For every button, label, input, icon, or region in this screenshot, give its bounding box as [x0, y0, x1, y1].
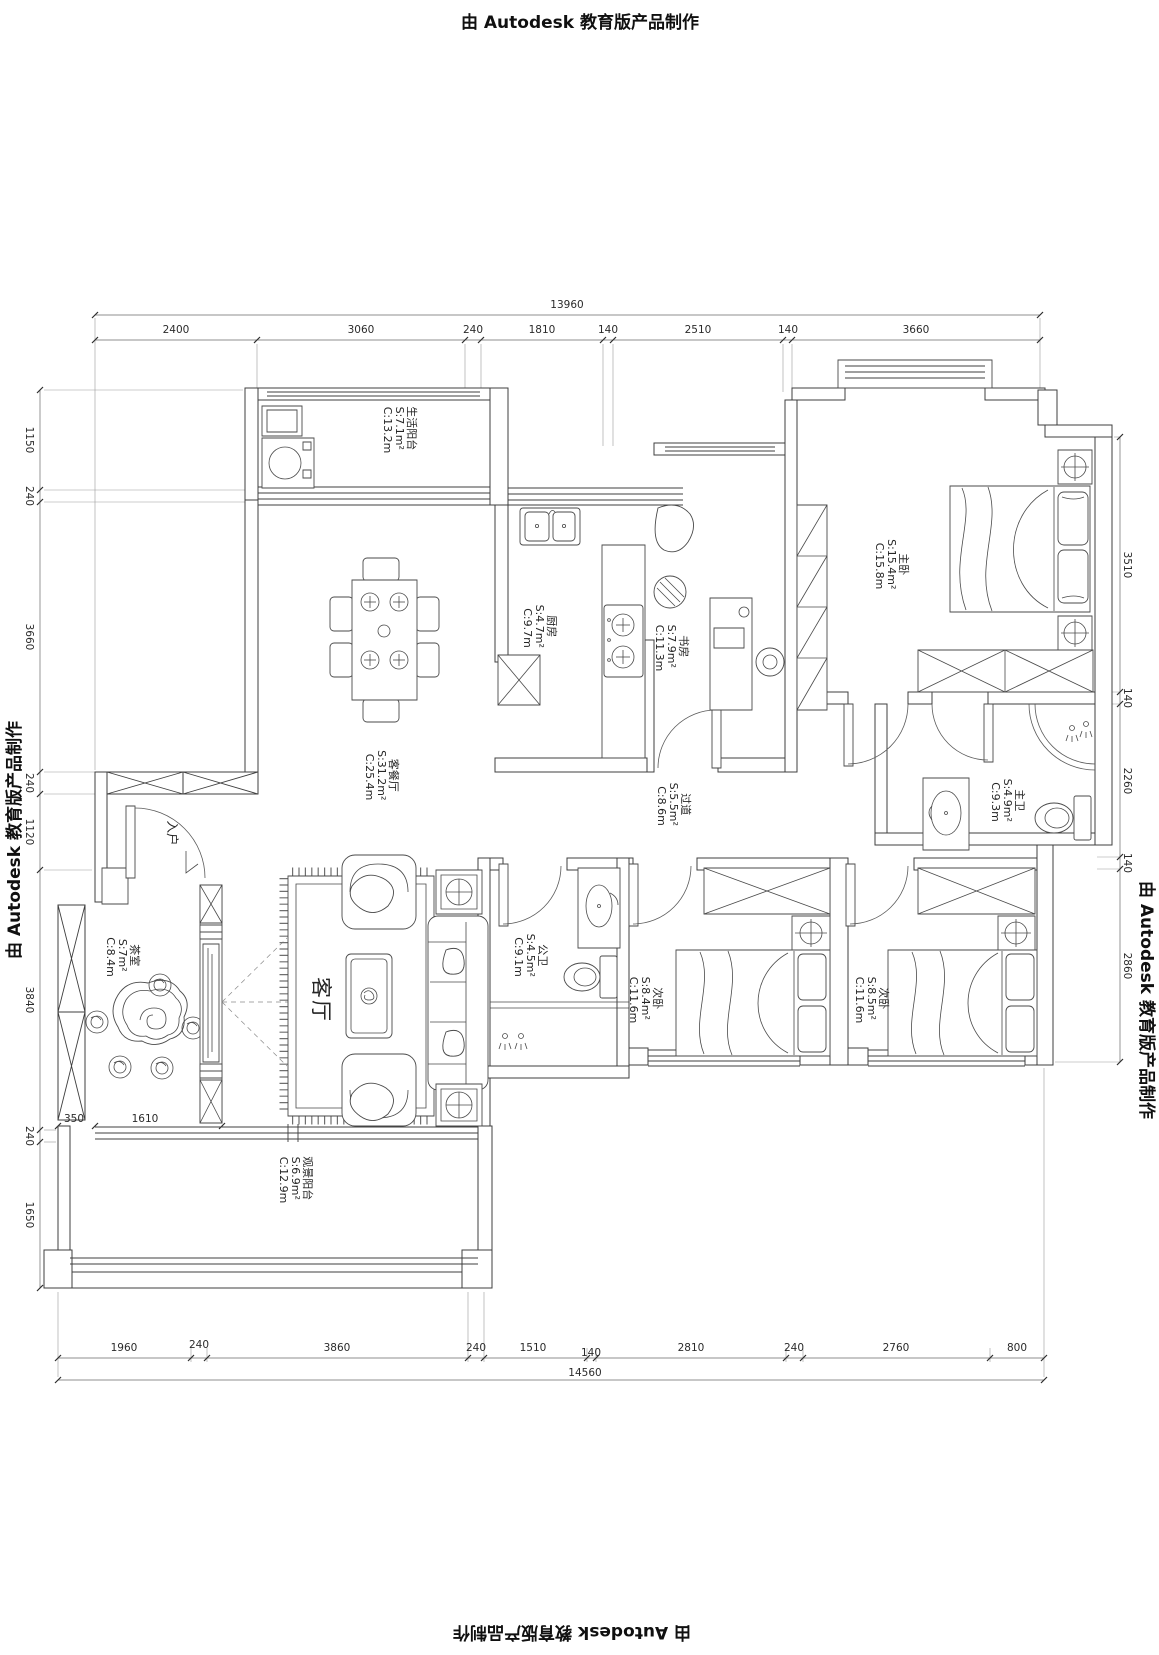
- label-guest-bath: 公卫 S:4.5m² C:9.1m: [512, 934, 549, 981]
- svg-text:240: 240: [466, 1342, 486, 1354]
- svg-text:3510: 3510: [1121, 552, 1133, 579]
- label-study: 书房 S:7.9m² C:11.3m: [653, 625, 690, 672]
- bedroom3-nightstand: [998, 916, 1035, 950]
- tv-wall: [200, 885, 300, 1123]
- bedroom2-nightstand: [792, 916, 830, 950]
- master-nightstand-2: [1058, 616, 1092, 650]
- guest-toilet: [564, 956, 617, 998]
- bedroom3-bed: [888, 950, 1037, 1056]
- svg-text:2760: 2760: [883, 1342, 910, 1354]
- entry-arrow: [186, 851, 198, 873]
- guest-shower: [490, 1002, 629, 1050]
- svg-text:240: 240: [189, 1339, 209, 1351]
- study-door: [658, 706, 721, 768]
- master-bath-sink: [923, 778, 969, 850]
- label-master-bedroom: 主卧 S:15.4m² C:15.8m: [873, 539, 910, 593]
- svg-text:3660: 3660: [23, 624, 35, 651]
- bedroom2-door: [629, 864, 691, 926]
- master-shower: [1029, 704, 1095, 770]
- label-bedroom2: 次卧 S:8.4m² C:11.6m: [627, 977, 665, 1024]
- bay-window-master: [838, 360, 992, 388]
- dim-interior-350: 350: [64, 1113, 84, 1125]
- label-corridor: 过道 S:5.5m² C:8.6m: [655, 783, 693, 830]
- label-kitchen: 厨房 S:4.7m² C:9.7m: [521, 605, 558, 652]
- study-side-table: [654, 576, 686, 608]
- label-tea-room: 茶室 S:7m² C:8.4m: [104, 937, 142, 977]
- svg-text:1510: 1510: [520, 1342, 547, 1354]
- floor-plan-sheet: 生活阳台 S:7.1m² C:13.2m 厨房 S:4.7m² C:9.7m 书…: [0, 0, 1159, 1655]
- bottom-dim-ticks: [55, 1355, 1047, 1383]
- label-view-balcony: 观景阳台 S:6.9m² C:12.9m: [277, 1156, 315, 1204]
- svg-text:240: 240: [23, 1126, 35, 1146]
- svg-text:2860: 2860: [1121, 953, 1133, 980]
- watermark-bottom: 由 Autodesk 教育版产品制作: [453, 1622, 691, 1643]
- guest-bath-door: [499, 864, 561, 926]
- svg-text:3860: 3860: [324, 1342, 351, 1354]
- svg-text:2810: 2810: [678, 1342, 705, 1354]
- top-dim-ticks: [92, 312, 1043, 343]
- svg-text:1960: 1960: [111, 1342, 138, 1354]
- entry-door: [102, 806, 205, 904]
- svg-text:1650: 1650: [23, 1202, 35, 1229]
- label-living-room: 客厅: [309, 977, 333, 1023]
- svg-text:140: 140: [581, 1347, 601, 1359]
- washing-machine: [262, 406, 314, 488]
- label-master-bath: 主卫 S:4.9m² C:9.3m: [989, 779, 1026, 826]
- armchair-bottom: [342, 1054, 416, 1126]
- master-nightstand-1: [1058, 450, 1092, 484]
- guest-bath-sink: [578, 868, 620, 948]
- sofa: [428, 916, 488, 1090]
- svg-text:140: 140: [1121, 688, 1133, 708]
- dim-interior-1610: 1610: [132, 1113, 159, 1125]
- master-bath-door: [932, 704, 993, 762]
- svg-text:2260: 2260: [1121, 768, 1133, 795]
- watermark-right: 由 Autodesk 教育版产品制作: [1136, 881, 1157, 1119]
- svg-text:240: 240: [784, 1342, 804, 1354]
- watermark-top: 由 Autodesk 教育版产品制作: [461, 12, 699, 33]
- kitchen-sink: [520, 508, 580, 545]
- svg-text:240: 240: [23, 486, 35, 506]
- svg-text:800: 800: [1007, 1342, 1027, 1354]
- watermark-left: 由 Autodesk 教育版产品制作: [4, 721, 25, 959]
- study-armchair: [655, 505, 693, 552]
- svg-text:1810: 1810: [529, 324, 556, 336]
- dim-bottom-total: 14560: [568, 1367, 601, 1379]
- bedroom2-wardrobe: [704, 868, 830, 914]
- dining-table: [330, 558, 439, 722]
- svg-text:3660: 3660: [903, 324, 930, 336]
- dim-top-total: 13960: [550, 299, 583, 311]
- svg-text:140: 140: [778, 324, 798, 336]
- tea-room-pier: [58, 905, 85, 1120]
- floor-plan-drawing: 生活阳台 S:7.1m² C:13.2m 厨房 S:4.7m² C:9.7m 书…: [0, 0, 1159, 1655]
- svg-text:2510: 2510: [685, 324, 712, 336]
- armchair-top: [342, 855, 416, 929]
- kitchen-stove: [604, 605, 643, 677]
- master-wardrobe: [918, 650, 1093, 692]
- label-bedroom3: 次卧 S:8.5m² C:11.6m: [853, 977, 891, 1024]
- coffee-table: [346, 954, 392, 1038]
- bedroom3-door: [846, 864, 908, 926]
- label-service-balcony: 生活阳台 S:7.1m² C:13.2m: [381, 406, 419, 454]
- svg-text:3840: 3840: [23, 987, 35, 1014]
- svg-text:240: 240: [463, 324, 483, 336]
- refrigerator: [498, 655, 540, 705]
- master-bed: [950, 486, 1090, 612]
- svg-text:2400: 2400: [163, 324, 190, 336]
- svg-text:140: 140: [598, 324, 618, 336]
- entry-wall-cabinet: [107, 772, 258, 794]
- label-living-dining: 客餐厅 S:31.2m² C:25.4m: [363, 750, 401, 804]
- svg-text:140: 140: [1121, 853, 1133, 873]
- master-closet: [797, 505, 827, 710]
- end-table-bottom: [436, 1084, 482, 1126]
- bedroom3-wardrobe: [918, 868, 1035, 914]
- svg-text:1150: 1150: [23, 427, 35, 454]
- end-table-top: [436, 870, 482, 914]
- study-desk: [710, 598, 784, 710]
- svg-text:3060: 3060: [348, 324, 375, 336]
- bedroom2-bed: [676, 950, 830, 1056]
- label-entry: 入户: [165, 820, 180, 845]
- doors: [102, 704, 993, 926]
